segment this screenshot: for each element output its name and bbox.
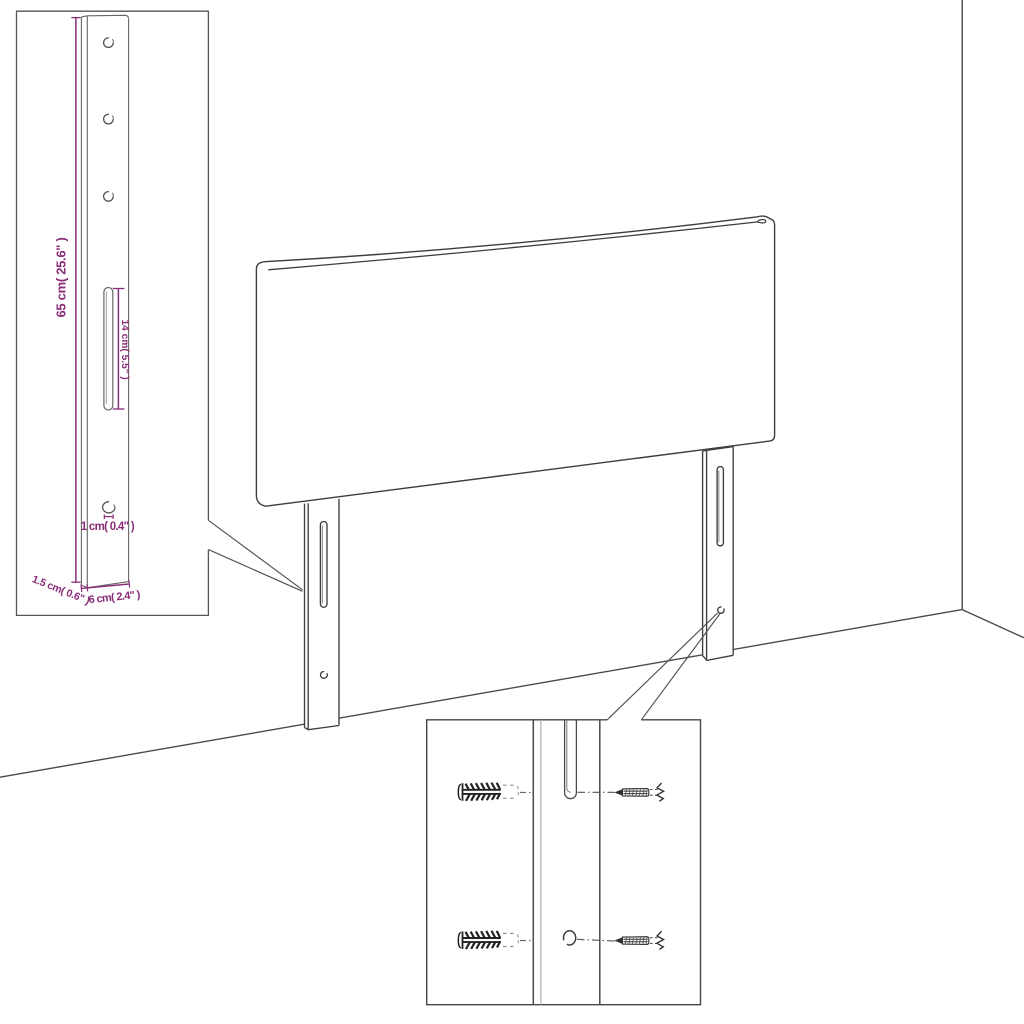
svg-text:14 cm( 5.5" ): 14 cm( 5.5" )	[119, 320, 130, 380]
svg-text:65 cm( 25.6" ): 65 cm( 25.6" )	[54, 237, 69, 317]
svg-text:1 cm( 0.4" ): 1 cm( 0.4" )	[81, 521, 135, 533]
